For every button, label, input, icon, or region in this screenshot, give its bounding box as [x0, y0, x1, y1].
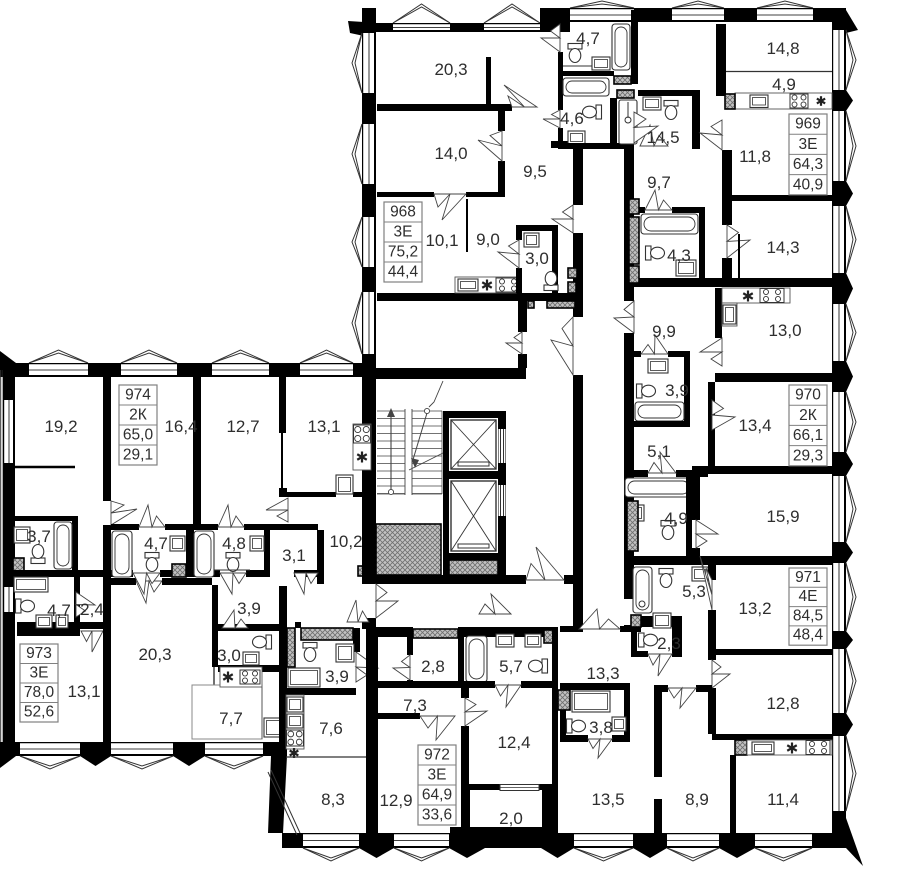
svg-text:29,3: 29,3 — [793, 447, 823, 464]
svg-text:13,4: 13,4 — [738, 416, 771, 435]
svg-text:13,5: 13,5 — [591, 790, 624, 809]
svg-text:969: 969 — [795, 116, 821, 133]
svg-text:64,9: 64,9 — [422, 787, 452, 804]
svg-text:3,7: 3,7 — [27, 527, 51, 546]
svg-text:44,4: 44,4 — [388, 264, 419, 281]
svg-text:8,3: 8,3 — [321, 790, 345, 809]
svg-text:5,7: 5,7 — [499, 657, 523, 676]
svg-text:4,9: 4,9 — [772, 75, 796, 94]
svg-text:11,4: 11,4 — [767, 790, 799, 809]
svg-text:64,3: 64,3 — [793, 156, 823, 173]
svg-text:84,5: 84,5 — [793, 607, 823, 624]
svg-text:33,6: 33,6 — [422, 807, 452, 824]
svg-text:9,0: 9,0 — [476, 230, 500, 249]
svg-text:4,6: 4,6 — [560, 109, 584, 128]
svg-text:52,6: 52,6 — [24, 704, 54, 721]
svg-text:66,1: 66,1 — [793, 427, 823, 444]
svg-text:12,7: 12,7 — [226, 417, 259, 436]
svg-text:9,7: 9,7 — [647, 173, 671, 192]
svg-text:20,3: 20,3 — [138, 645, 171, 664]
svg-text:3Е: 3Е — [30, 665, 49, 682]
svg-text:4Е: 4Е — [799, 588, 818, 605]
svg-text:2К: 2К — [129, 407, 147, 424]
svg-text:14,0: 14,0 — [434, 144, 467, 163]
svg-text:19,2: 19,2 — [44, 417, 77, 436]
svg-text:2,4: 2,4 — [80, 600, 104, 619]
svg-text:13,0: 13,0 — [768, 321, 801, 340]
svg-text:14,5: 14,5 — [646, 128, 679, 147]
svg-text:9,5: 9,5 — [523, 162, 547, 181]
svg-text:973: 973 — [26, 645, 52, 662]
svg-text:10,1: 10,1 — [425, 231, 458, 250]
svg-text:13,2: 13,2 — [738, 599, 771, 618]
svg-text:10,2: 10,2 — [329, 532, 362, 551]
svg-text:5,1: 5,1 — [647, 442, 671, 461]
svg-text:20,3: 20,3 — [434, 60, 467, 79]
svg-text:75,2: 75,2 — [388, 244, 418, 261]
svg-text:8,9: 8,9 — [685, 790, 709, 809]
svg-text:971: 971 — [795, 569, 821, 586]
svg-text:11,8: 11,8 — [739, 147, 771, 166]
svg-text:7,3: 7,3 — [403, 696, 427, 715]
svg-text:3,1: 3,1 — [282, 546, 306, 565]
svg-text:29,1: 29,1 — [123, 447, 153, 464]
svg-text:14,8: 14,8 — [766, 39, 799, 58]
svg-text:4,7: 4,7 — [576, 29, 600, 48]
svg-text:4,7: 4,7 — [144, 534, 168, 553]
svg-text:12,4: 12,4 — [497, 733, 530, 752]
svg-text:970: 970 — [795, 387, 821, 404]
svg-text:3,9: 3,9 — [665, 381, 689, 400]
svg-text:16,4: 16,4 — [164, 417, 197, 436]
svg-text:3,0: 3,0 — [525, 249, 549, 268]
svg-text:968: 968 — [390, 204, 416, 221]
svg-text:972: 972 — [424, 747, 450, 764]
svg-text:9,9: 9,9 — [652, 322, 676, 341]
svg-text:78,0: 78,0 — [24, 684, 55, 701]
svg-text:3,0: 3,0 — [217, 646, 241, 665]
svg-text:2,8: 2,8 — [421, 657, 445, 676]
svg-text:15,9: 15,9 — [766, 507, 799, 526]
svg-text:3,9: 3,9 — [237, 599, 261, 618]
svg-text:2К: 2К — [799, 407, 817, 424]
svg-text:4,9: 4,9 — [664, 509, 688, 528]
svg-text:13,3: 13,3 — [586, 664, 619, 683]
svg-text:13,1: 13,1 — [67, 682, 100, 701]
svg-text:65,0: 65,0 — [123, 427, 154, 444]
svg-text:40,9: 40,9 — [793, 176, 823, 193]
svg-text:4,3: 4,3 — [667, 246, 691, 265]
svg-text:2,3: 2,3 — [657, 634, 681, 653]
svg-text:7,7: 7,7 — [219, 709, 243, 728]
svg-text:3Е: 3Е — [428, 767, 447, 784]
svg-text:2,0: 2,0 — [499, 809, 523, 828]
svg-text:3Е: 3Е — [394, 224, 413, 241]
svg-text:3,9: 3,9 — [325, 667, 349, 686]
svg-text:48,4: 48,4 — [793, 627, 824, 644]
svg-text:7,6: 7,6 — [319, 719, 343, 738]
svg-text:12,8: 12,8 — [766, 694, 799, 713]
svg-text:5,3: 5,3 — [682, 582, 706, 601]
svg-text:4,7: 4,7 — [47, 601, 71, 620]
svg-text:4,8: 4,8 — [222, 534, 246, 553]
svg-text:12,9: 12,9 — [379, 791, 412, 810]
svg-text:14,3: 14,3 — [766, 238, 799, 257]
svg-text:974: 974 — [125, 387, 151, 404]
svg-text:3,8: 3,8 — [589, 718, 613, 737]
svg-text:3Е: 3Е — [799, 136, 818, 153]
svg-text:13,1: 13,1 — [307, 417, 340, 436]
